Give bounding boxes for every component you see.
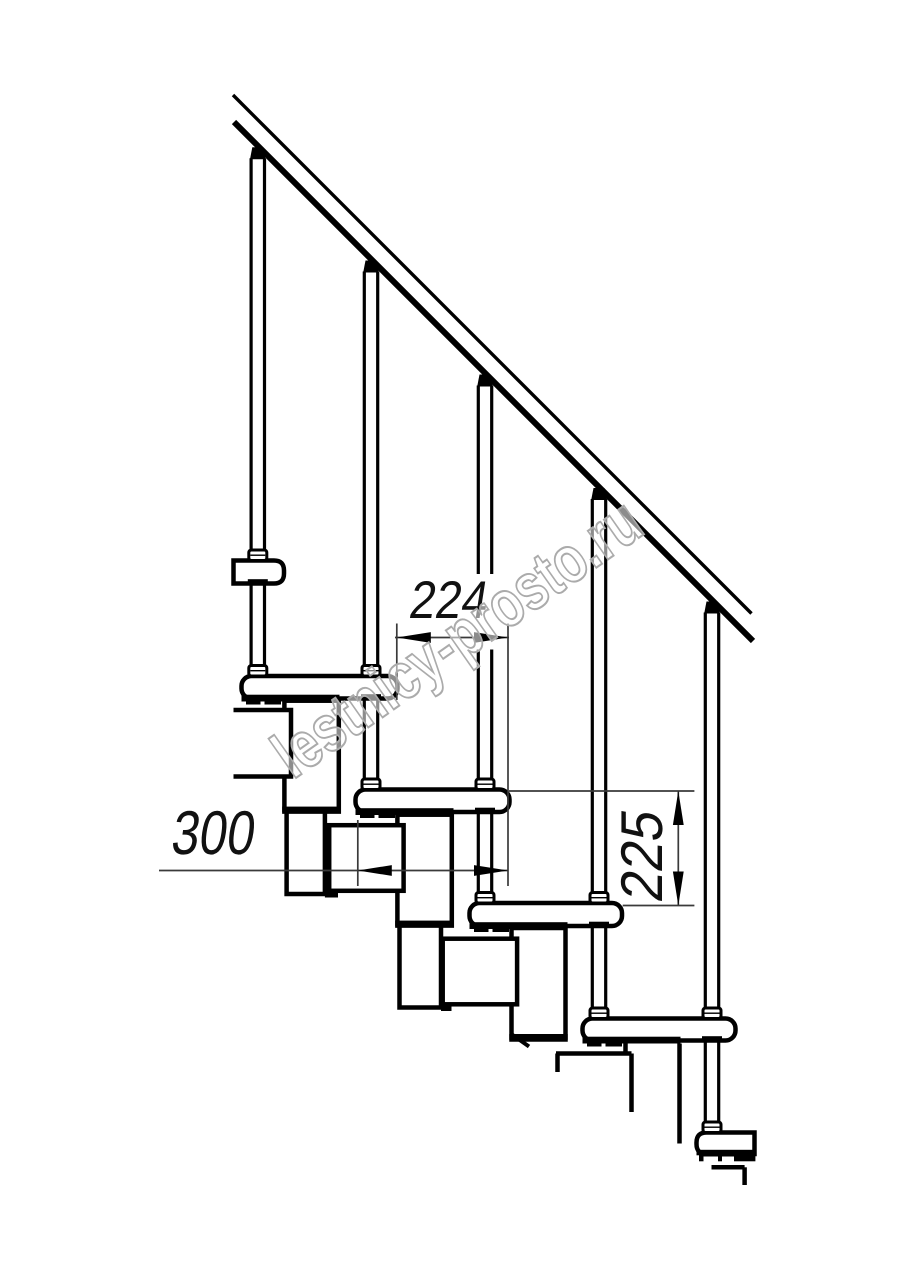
svg-text:300: 300: [168, 798, 260, 867]
svg-text:225: 225: [609, 805, 675, 906]
